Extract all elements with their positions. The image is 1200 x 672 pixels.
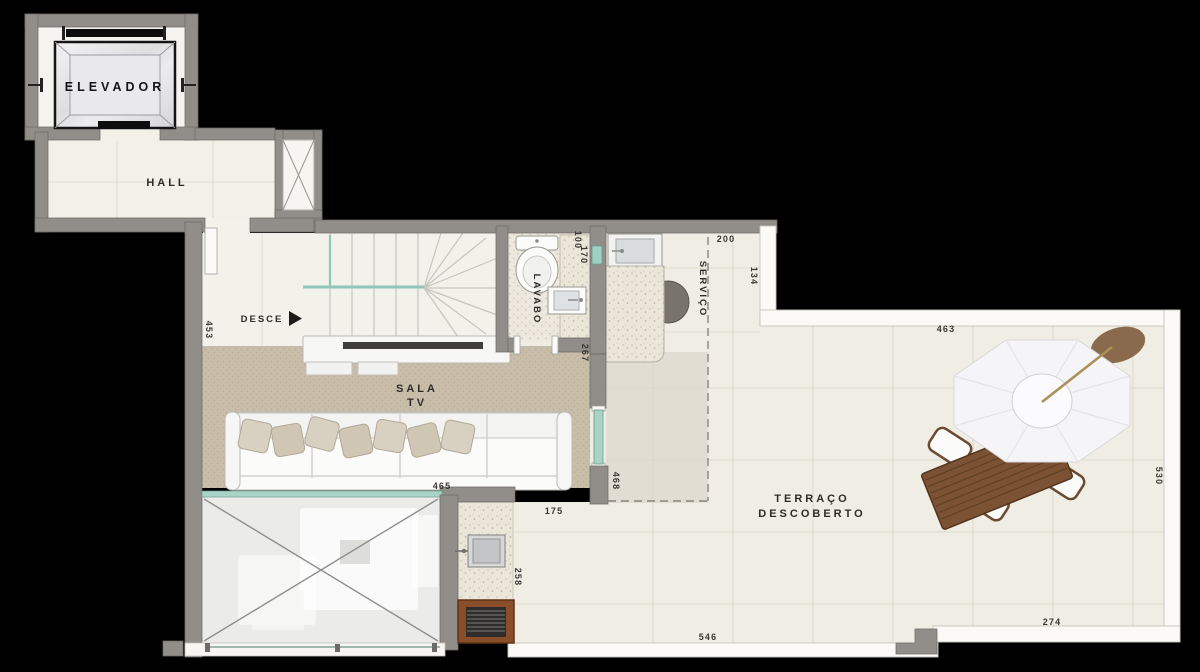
- elevator-door-top: [66, 29, 163, 37]
- dim-453: 453: [204, 321, 214, 340]
- terraco-label-line1: TERRAÇO: [774, 493, 849, 505]
- terraco-label-line2: DESCOBERTO: [758, 508, 865, 520]
- dim-465: 465: [433, 481, 452, 491]
- sala-label-line2: TV: [407, 397, 427, 409]
- dim-463: 463: [937, 324, 956, 334]
- stair-hall-floor: [202, 233, 496, 348]
- elevator-label: ELEVADOR: [65, 80, 166, 94]
- hall-label: HALL: [146, 177, 187, 189]
- sofa: [225, 412, 572, 490]
- dim-175: 175: [545, 506, 564, 516]
- dim-134: 134: [749, 267, 759, 286]
- dim-546: 546: [699, 632, 718, 642]
- glass-sliding-door: [594, 410, 603, 464]
- dim-258: 258: [513, 568, 523, 587]
- dim-267: 267: [580, 344, 590, 363]
- glass-panel-lavabo: [592, 246, 602, 264]
- sala-label-line1: SALA: [396, 383, 438, 395]
- dim-530: 530: [1154, 467, 1164, 486]
- lavabo-label: LAVABO: [531, 274, 542, 325]
- glass-guardrail-sala: [202, 491, 442, 497]
- floor-plan-canvas: ELEVADOR HALL DESCE LAVABO SERVIÇO SALA …: [0, 0, 1200, 672]
- elevator-door-bottom: [98, 121, 150, 129]
- door-leaf: [205, 228, 217, 274]
- dim-200: 200: [717, 234, 736, 244]
- floor-plan-svg: ELEVADOR HALL DESCE LAVABO SERVIÇO SALA …: [0, 0, 1200, 672]
- desce-label: DESCE: [241, 314, 284, 325]
- servico-label: SERVIÇO: [697, 261, 708, 318]
- servico-counter: [606, 266, 664, 362]
- umbrella: [954, 340, 1130, 462]
- dim-170: 170: [579, 246, 589, 265]
- dim-274: 274: [1043, 617, 1062, 627]
- tv-screen: [343, 342, 483, 349]
- dim-468: 468: [611, 472, 621, 491]
